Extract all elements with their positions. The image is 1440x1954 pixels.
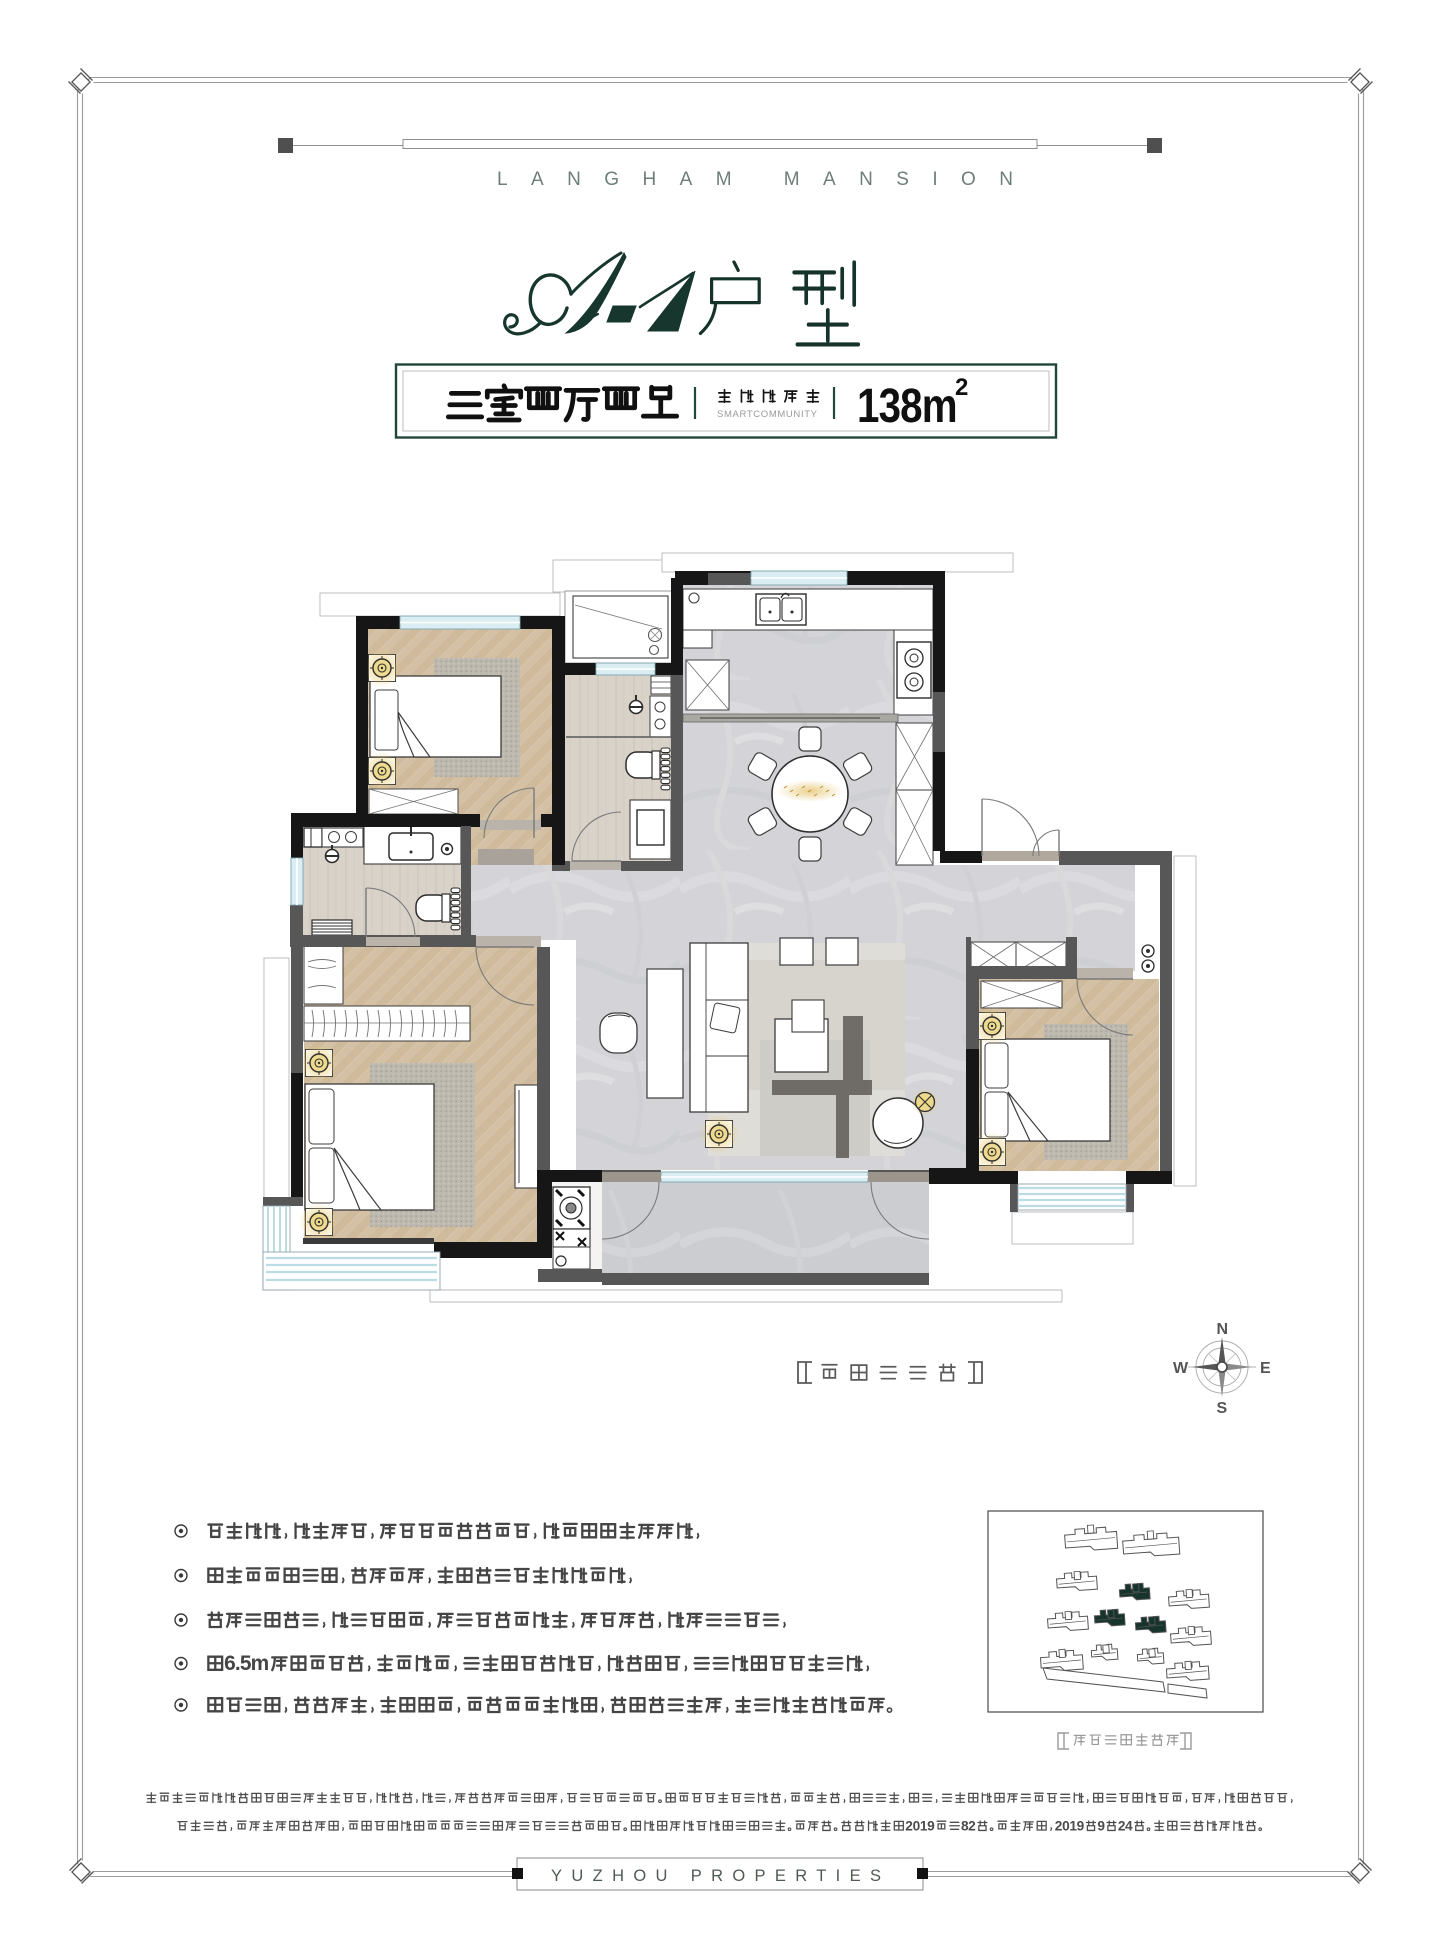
svg-text:6.5m: 6.5m (224, 1652, 269, 1675)
svg-text:82: 82 (961, 1818, 976, 1833)
svg-text:138m: 138m (857, 380, 957, 433)
svg-text:2019: 2019 (1055, 1818, 1085, 1833)
svg-text:2019: 2019 (905, 1818, 935, 1833)
svg-text:S: S (1217, 1400, 1228, 1417)
svg-text:N: N (1217, 1321, 1229, 1338)
svg-text:YUZHOU PROPERTIES: YUZHOU PROPERTIES (551, 1867, 891, 1885)
svg-text:24: 24 (1118, 1818, 1133, 1833)
svg-text:9: 9 (1097, 1818, 1105, 1833)
svg-text:2: 2 (955, 374, 968, 401)
svg-text:SMARTCOMMUNITY: SMARTCOMMUNITY (717, 409, 819, 420)
svg-text:LANGHAM MANSION: LANGHAM MANSION (497, 169, 1037, 190)
svg-text:W: W (1173, 1360, 1189, 1377)
svg-text:E: E (1260, 1360, 1271, 1377)
